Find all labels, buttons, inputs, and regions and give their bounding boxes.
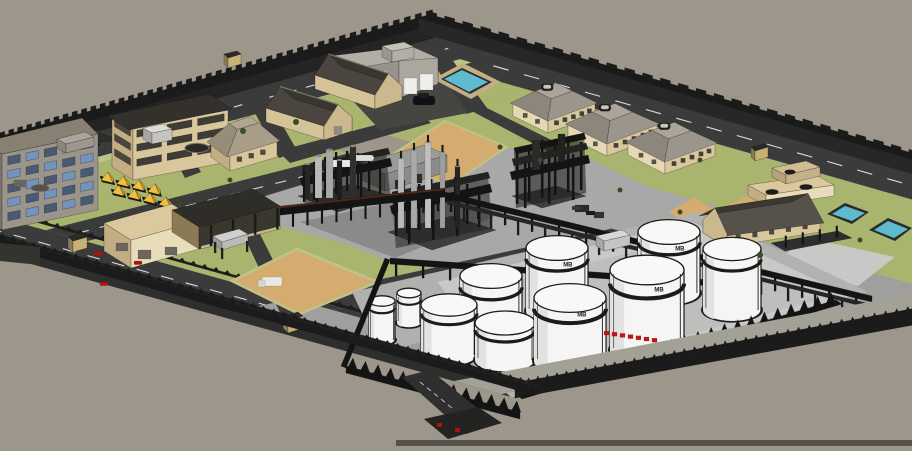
svg-text:MB: MB (577, 313, 587, 319)
svg-text:MB: MB (563, 263, 573, 269)
svg-text:MB: MB (675, 246, 685, 252)
svg-text:MB: MB (654, 288, 664, 294)
